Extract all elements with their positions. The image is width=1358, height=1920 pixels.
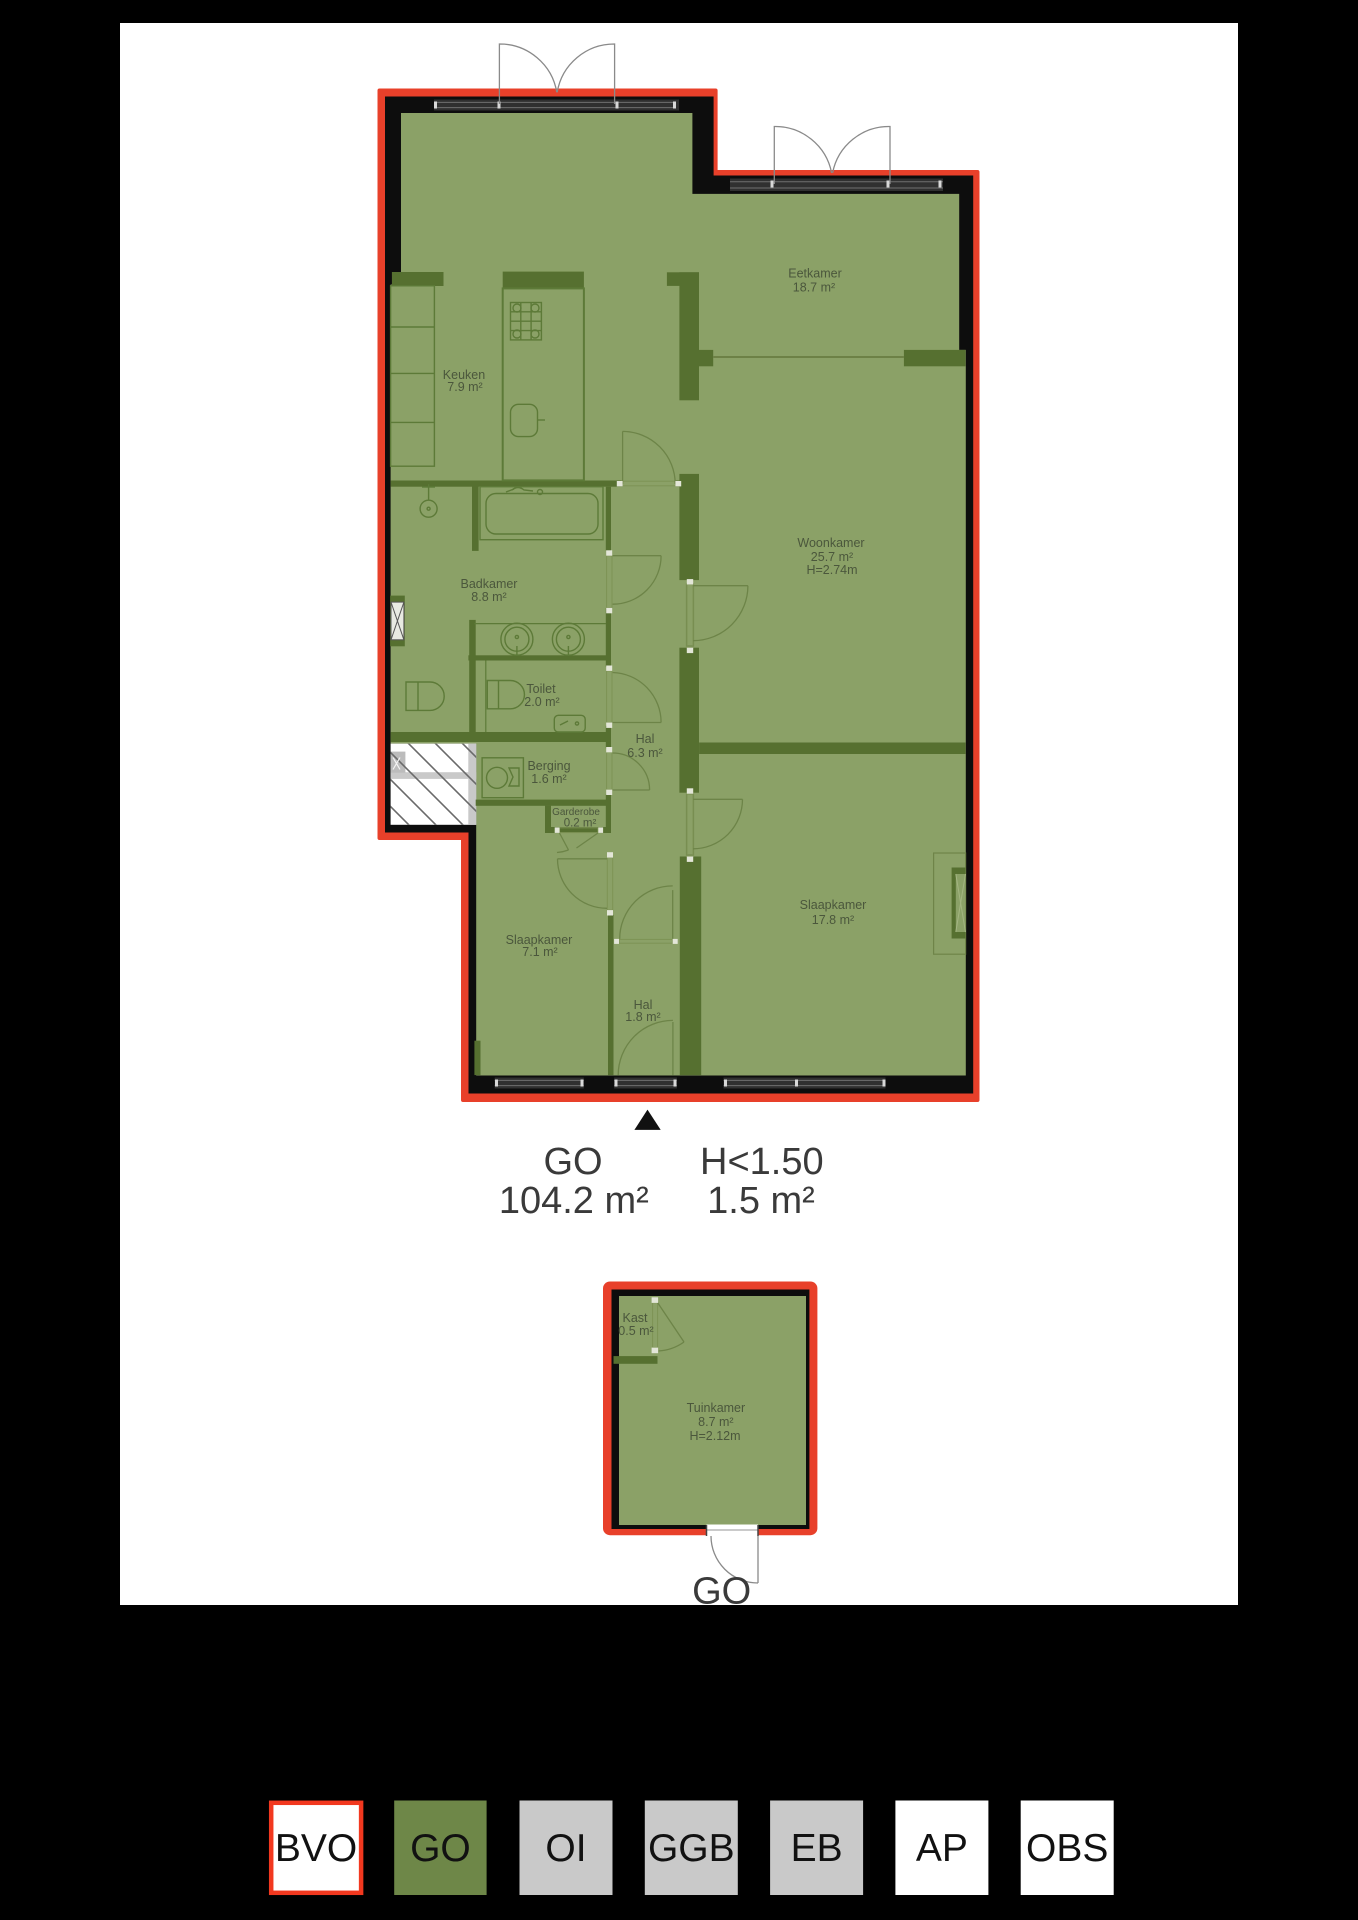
svg-text:7.9 m²: 7.9 m²: [447, 380, 482, 394]
svg-text:OBS: OBS: [1026, 1827, 1108, 1870]
svg-text:18.7 m²: 18.7 m²: [793, 281, 835, 295]
svg-text:OI: OI: [545, 1827, 586, 1870]
svg-text:Tuinkamer: Tuinkamer: [687, 1401, 746, 1415]
svg-text:H=2.74m: H=2.74m: [806, 563, 857, 577]
svg-text:0.2 m²: 0.2 m²: [564, 818, 597, 830]
svg-text:8.8 m²: 8.8 m²: [471, 590, 506, 604]
svg-text:GO: GO: [410, 1827, 471, 1870]
svg-text:H<1.50: H<1.50: [700, 1141, 824, 1183]
svg-text:7.1 m²: 7.1 m²: [522, 945, 557, 959]
svg-text:Eetkamer: Eetkamer: [788, 267, 842, 281]
svg-text:Hal: Hal: [636, 732, 655, 746]
svg-text:8.7 m²: 8.7 m²: [698, 1415, 733, 1429]
svg-text:2.0 m²: 2.0 m²: [524, 695, 559, 709]
svg-text:17.8 m²: 17.8 m²: [812, 913, 854, 927]
svg-text:Kast: Kast: [622, 1311, 648, 1325]
svg-text:EB: EB: [791, 1827, 843, 1870]
svg-text:Berging: Berging: [527, 759, 570, 773]
svg-text:104.2 m²: 104.2 m²: [499, 1180, 649, 1222]
svg-text:Woonkamer: Woonkamer: [797, 536, 864, 550]
svg-text:GGB: GGB: [648, 1827, 735, 1870]
svg-text:Garderobe: Garderobe: [552, 807, 600, 818]
svg-text:1.6 m²: 1.6 m²: [531, 772, 566, 786]
svg-text:0.5 m²: 0.5 m²: [618, 1324, 653, 1338]
svg-text:25.7 m²: 25.7 m²: [811, 550, 853, 564]
svg-text:Badkamer: Badkamer: [461, 577, 518, 591]
svg-text:6.3 m²: 6.3 m²: [627, 746, 662, 760]
svg-text:GO: GO: [543, 1141, 602, 1183]
svg-text:Toilet: Toilet: [526, 682, 556, 696]
svg-text:1.8 m²: 1.8 m²: [625, 1010, 660, 1024]
svg-text:Slaapkamer: Slaapkamer: [800, 898, 867, 912]
svg-text:H=2.12m: H=2.12m: [689, 1429, 740, 1443]
svg-text:1.5 m²: 1.5 m²: [707, 1180, 815, 1222]
svg-text:AP: AP: [916, 1827, 968, 1870]
svg-text:BVO: BVO: [275, 1827, 357, 1870]
